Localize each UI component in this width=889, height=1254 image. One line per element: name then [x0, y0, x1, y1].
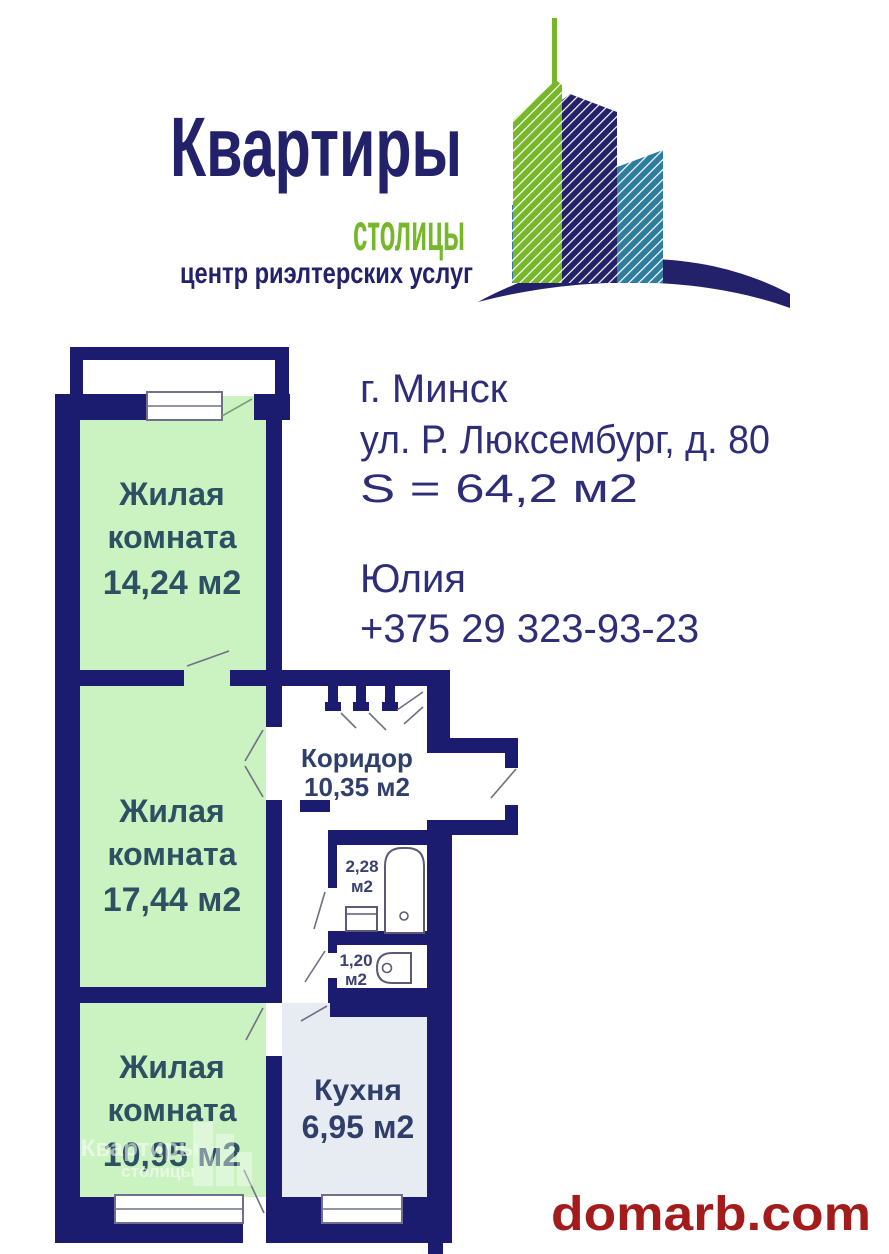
plan-watermark-building — [237, 1152, 252, 1186]
room2-area: 17,44 м2 — [103, 881, 242, 919]
building-stripes — [513, 80, 562, 283]
brand-buildings-icon — [478, 18, 790, 308]
kitchen-label: Кухня 6,95 м2 — [302, 1074, 415, 1145]
plan-watermark-title: Квартиры — [81, 1135, 199, 1162]
plan-watermark-subtitle: столицы — [121, 1162, 195, 1181]
corridor-area: 10,35 м2 — [304, 772, 410, 802]
room1-name-line2: комната — [108, 519, 237, 555]
window-room3 — [115, 1195, 243, 1223]
window-kitchen — [322, 1195, 402, 1223]
plan-watermark-building — [216, 1134, 234, 1186]
room1-room2-door-gap — [184, 670, 230, 686]
flyer-canvas: Квартиры столицы центр риэлтерских услуг — [0, 0, 889, 1254]
toilet-area-unit: м2 — [345, 970, 367, 989]
room3-name-line1: Жилая — [118, 1049, 224, 1085]
flyer-page: Квартиры столицы центр риэлтерских услуг — [0, 0, 889, 1254]
listing-address: ул. Р. Люксембург, д. 80 — [360, 418, 770, 462]
toilet-area-value: 1,20 — [339, 951, 372, 970]
room1-name-line1: Жилая — [118, 476, 224, 512]
brand-tagline: центр риэлтерских услуг — [180, 257, 473, 290]
bathroom-area-unit: м2 — [351, 877, 373, 896]
brand-subtitle: столицы — [353, 204, 465, 262]
window-room1 — [147, 392, 222, 420]
listing-city: г. Минск — [360, 367, 508, 411]
room3-name-line2: комната — [108, 1092, 237, 1128]
site-watermark: domarb.com — [551, 1188, 871, 1241]
bathroom-area-value: 2,28 — [345, 857, 378, 876]
room2-label: Жилая комната 17,44 м2 — [103, 793, 242, 919]
room1-label: Жилая комната 14,24 м2 — [103, 476, 242, 602]
building-stripes — [617, 150, 663, 283]
listing-info: г. Минск ул. Р. Люксембург, д. 80 S = 64… — [360, 367, 770, 651]
bathroom-label: 2,28 м2 — [345, 857, 378, 896]
room2-name-line1: Жилая — [118, 793, 224, 829]
brand-logo: Квартиры столицы центр риэлтерских услуг — [170, 18, 790, 308]
entrance-door-swing — [491, 769, 516, 798]
contact-name: Юлия — [360, 557, 466, 601]
bathroom-door-swing — [314, 892, 325, 929]
building-stripes — [562, 94, 617, 283]
toilet-door-swing — [305, 951, 325, 982]
corridor-label: Коридор 10,35 м2 — [301, 743, 413, 802]
plan-watermark-building — [193, 1122, 213, 1186]
room2-name-line2: комната — [108, 836, 237, 872]
contact-phone: +375 29 323-93-23 — [360, 607, 699, 651]
closet-door-line — [341, 713, 356, 728]
closet-door-line — [369, 713, 386, 730]
building-green-spire — [552, 18, 557, 84]
corridor-name: Коридор — [301, 743, 413, 773]
kitchen-name: Кухня — [314, 1074, 402, 1107]
kitchen-area: 6,95 м2 — [302, 1109, 415, 1145]
sink-icon — [346, 907, 377, 931]
toilet-label: 1,20 м2 — [339, 951, 372, 989]
room1-area: 14,24 м2 — [103, 564, 242, 602]
brand-title: Квартиры — [170, 100, 462, 194]
closet-door-line — [404, 707, 423, 724]
closet-door-line — [397, 692, 423, 710]
listing-total-area: S = 64,2 м2 — [360, 467, 638, 511]
